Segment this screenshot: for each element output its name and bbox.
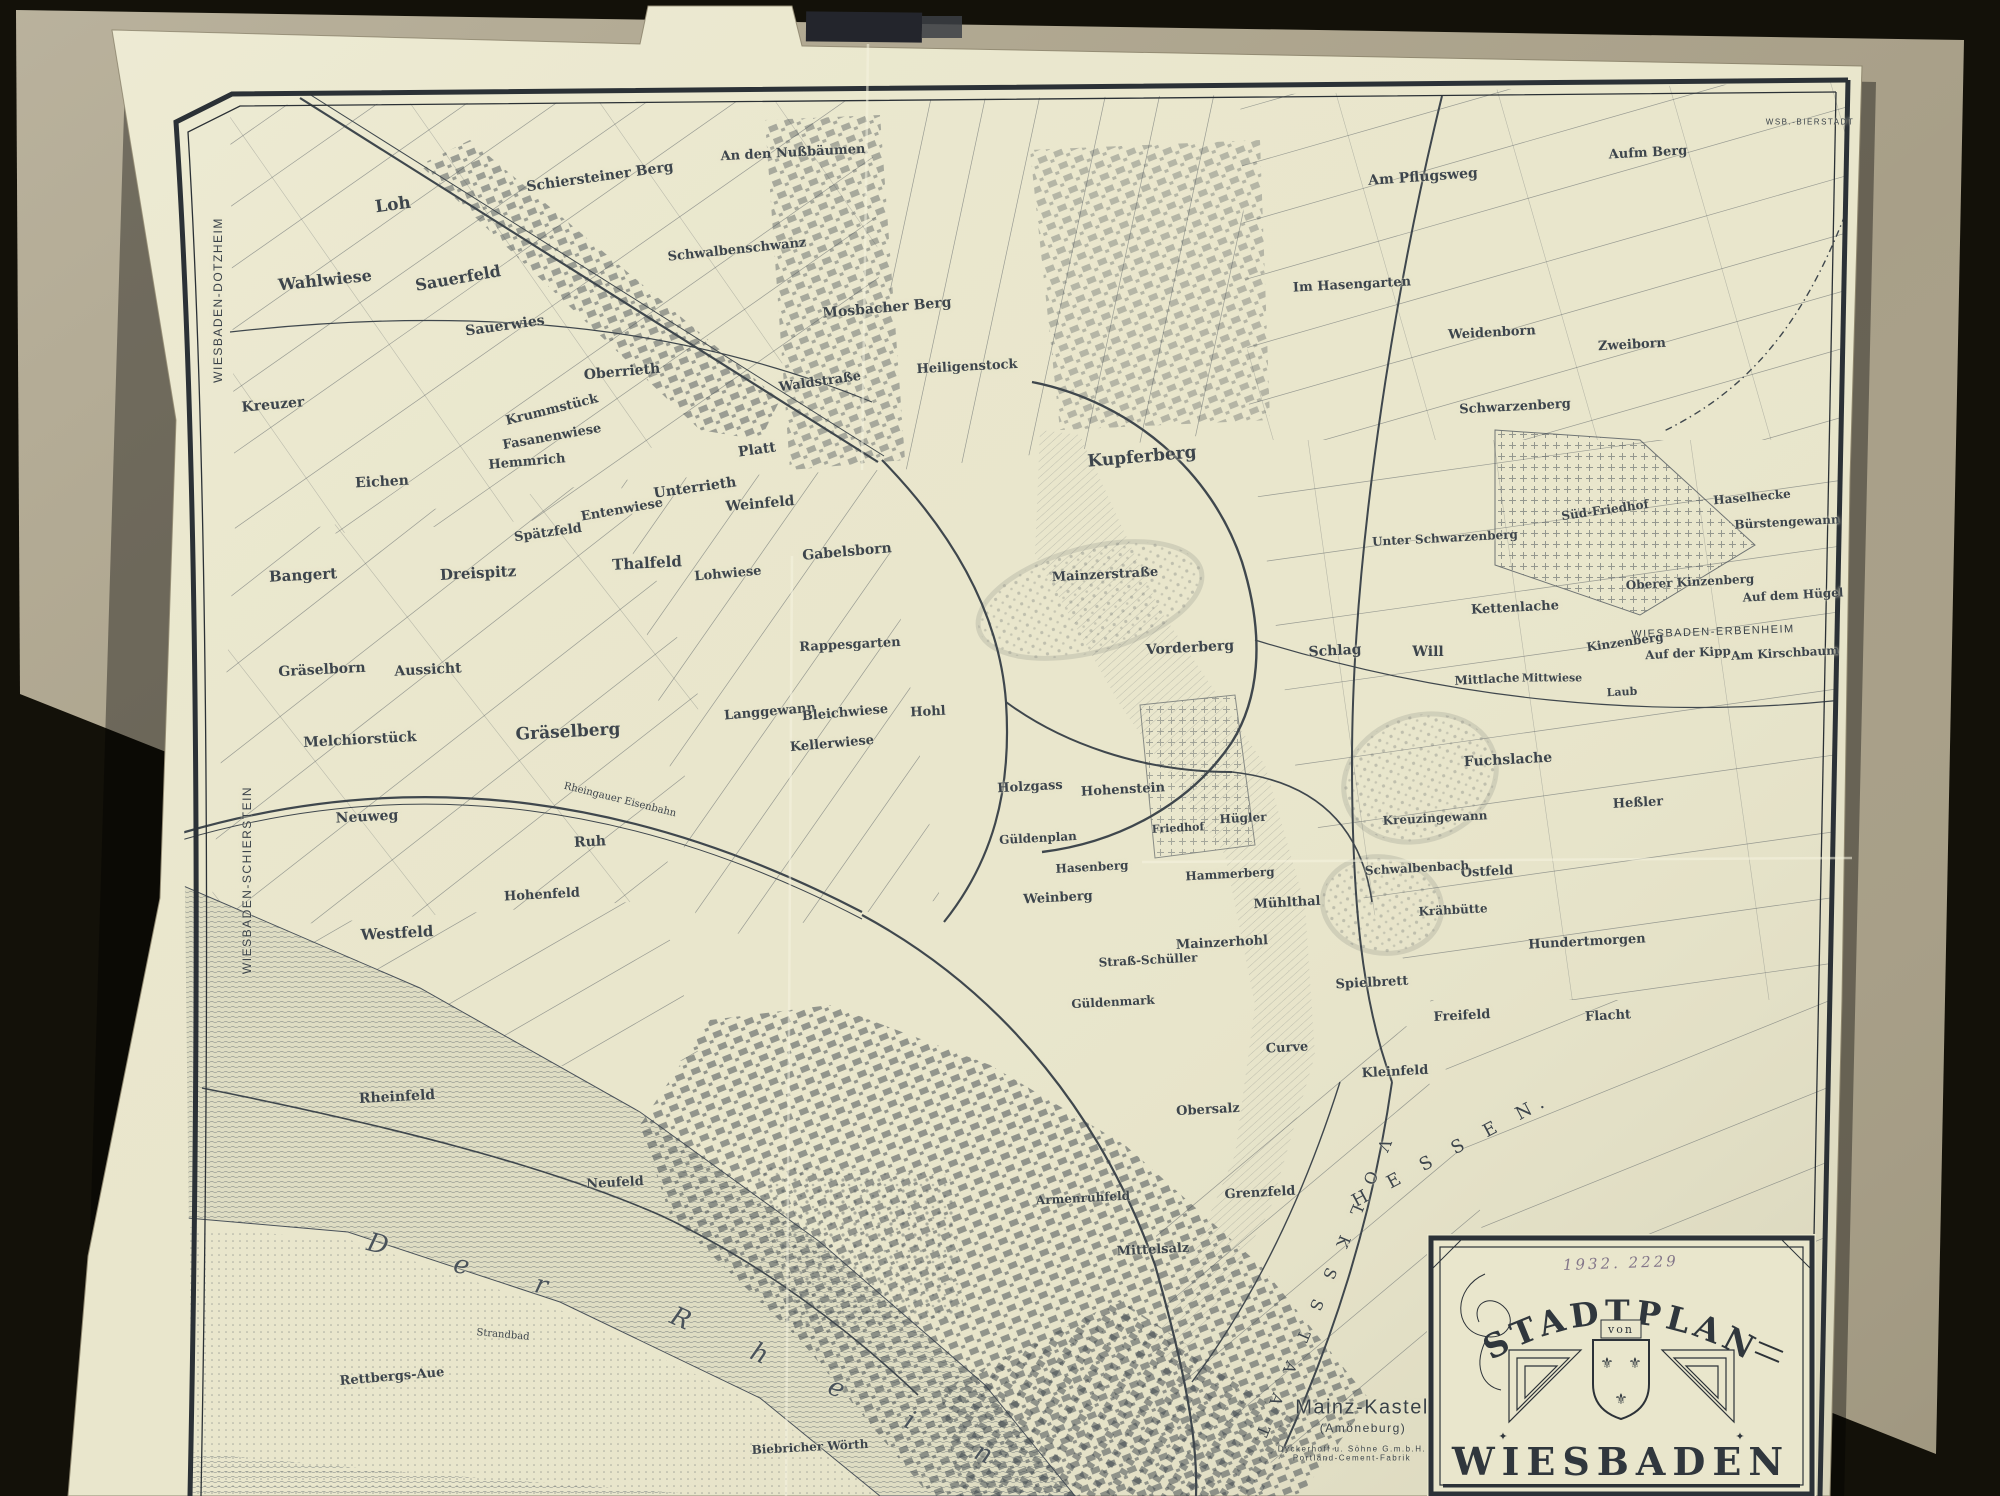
map-label: Thalfeld — [612, 552, 683, 574]
map-label: Schlag — [1308, 642, 1362, 661]
cartouche-rule — [1443, 1484, 1800, 1488]
map-label: WIESBADEN-SCHIERSTEIN — [240, 786, 254, 974]
scanned-map-page: WIESBADEN-DOTZHEIMWIESBADEN-SCHIERSTEINW… — [0, 0, 2000, 1496]
map-label: WSB.-BIERSTADT — [1766, 118, 1854, 127]
cartouche-city-text: WIESBADEN — [1451, 1439, 1790, 1484]
map-label: Bangert — [268, 564, 337, 586]
map-label: Hohl — [910, 704, 946, 721]
map-label: Neuweg — [335, 807, 398, 826]
map-label: Neufeld — [586, 1174, 644, 1192]
archive-tape-small — [922, 16, 962, 38]
title-cartouche: 1932. 2229 STADTPLAN von ⚜⚜⚜ ✦✦ WIESBADE… — [1425, 1232, 1818, 1496]
map-label: Heßler — [1612, 794, 1663, 812]
map-label: Hügler — [1219, 810, 1267, 826]
map-label: Laub — [1606, 685, 1637, 700]
archive-tape — [806, 11, 922, 42]
map-label: Flacht — [1585, 1007, 1632, 1024]
map-label: Dyckerhoff u. Söhne G.m.b.H. — [1278, 1445, 1427, 1454]
map-label: Curve — [1265, 1039, 1308, 1056]
map-label: WIESBADEN-DOTZHEIM — [211, 217, 225, 383]
map-label: Portland-Cement-Fabrik — [1293, 1454, 1411, 1463]
map-label: Freifeld — [1433, 1007, 1491, 1025]
map-label: Will — [1412, 644, 1443, 660]
map-label: Westfeld — [360, 922, 434, 944]
svg-text:⚜: ⚜ — [1628, 1354, 1641, 1372]
map-label: Ruh — [574, 833, 607, 851]
map-label: Mittwiese — [1522, 672, 1582, 685]
svg-text:⚜: ⚜ — [1614, 1390, 1627, 1408]
northeast-quarter — [1030, 140, 1270, 430]
map-label: Mainz-Kastel — [1295, 1397, 1429, 1420]
svg-text:⚜: ⚜ — [1600, 1354, 1613, 1372]
von-label: von — [1607, 1323, 1634, 1336]
map-label: Eichen — [355, 473, 410, 492]
map-label: Friedhof — [1152, 820, 1205, 836]
map-label: (Amöneburg) — [1320, 1421, 1407, 1435]
